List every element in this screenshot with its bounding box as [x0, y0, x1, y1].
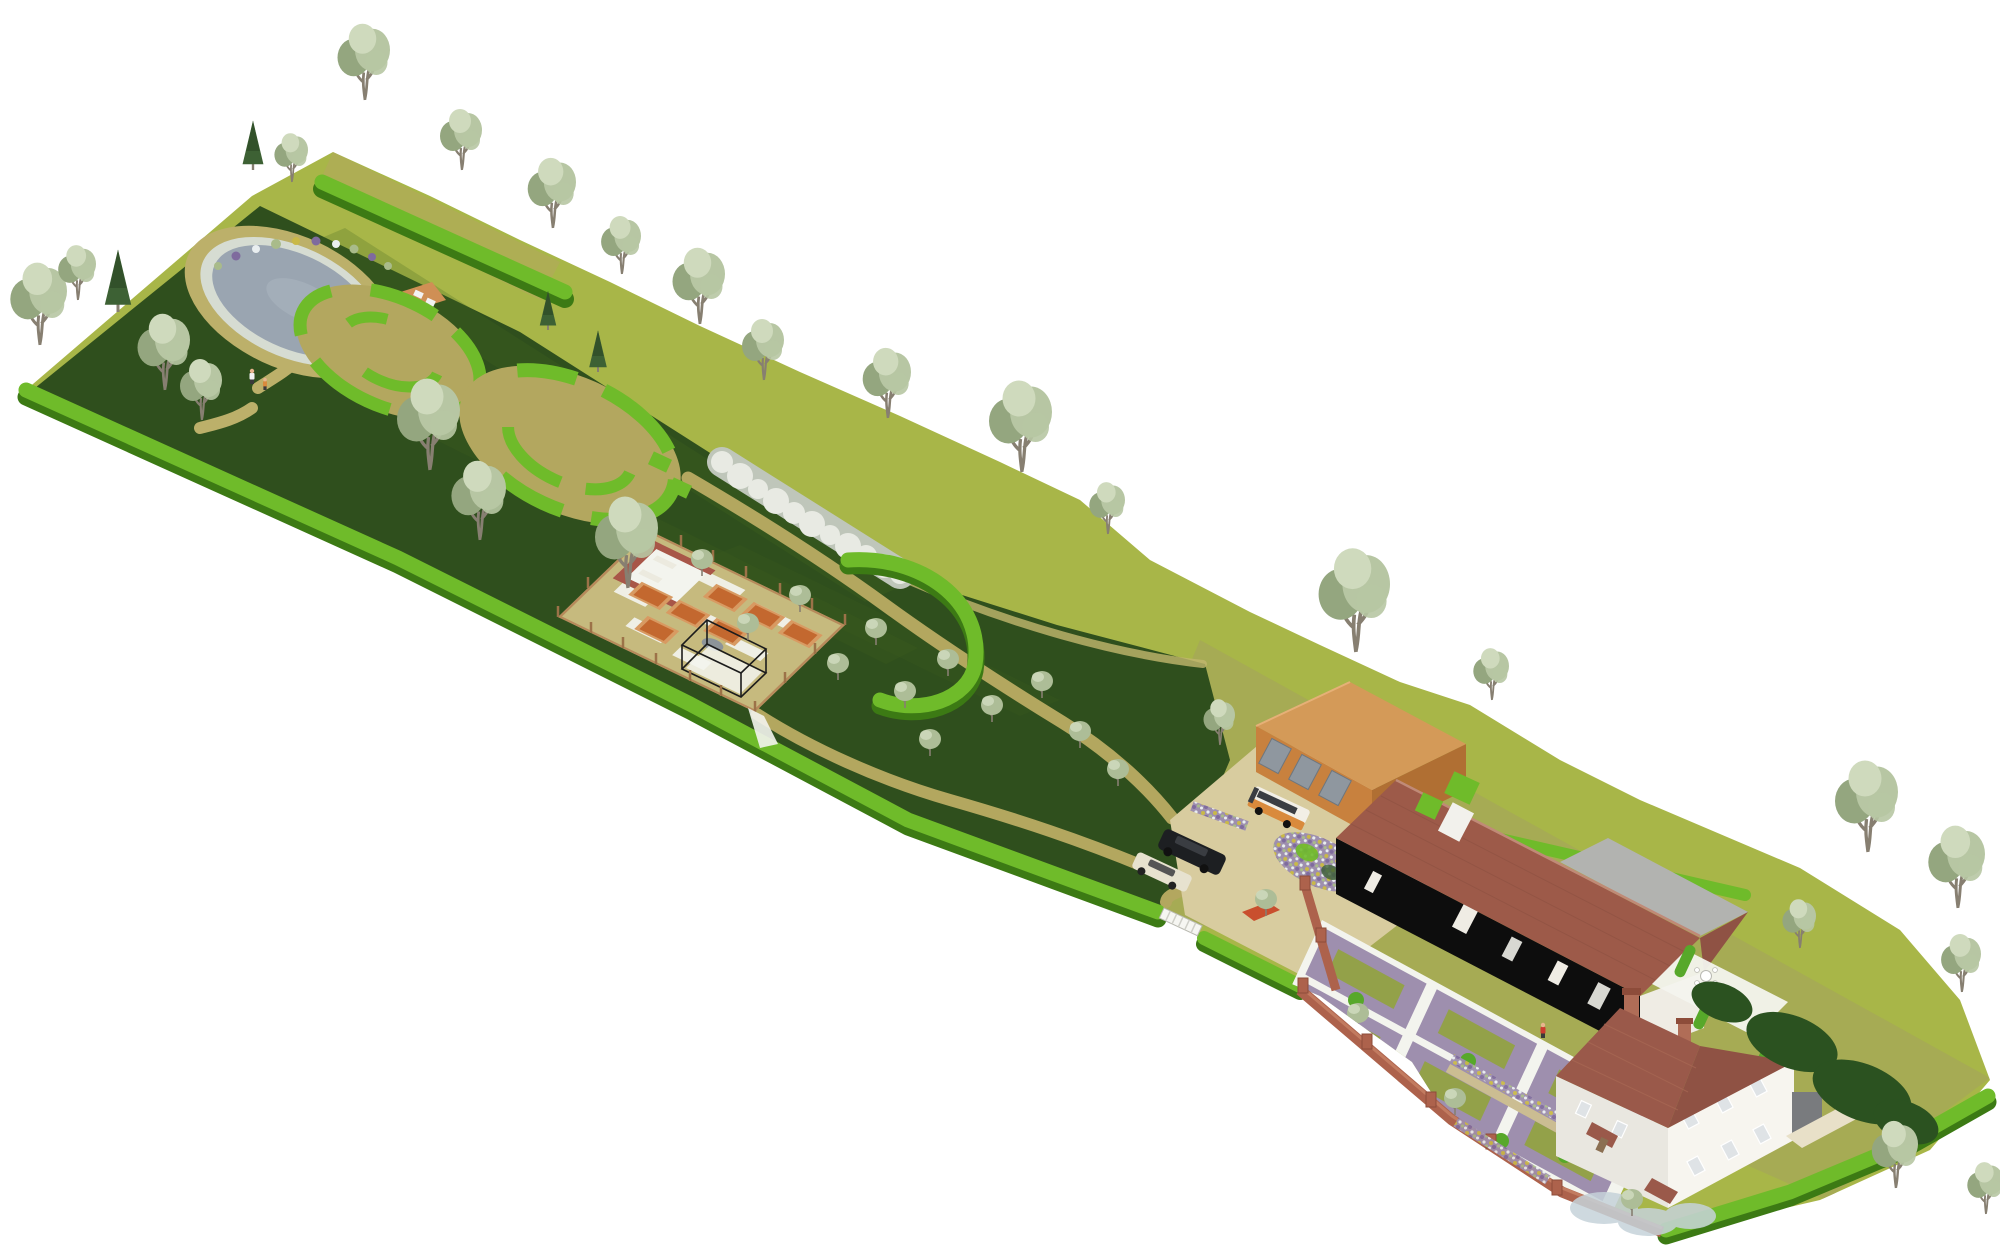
deciduous-tree	[601, 216, 641, 274]
deciduous-tree	[673, 248, 726, 324]
masterplan-canvas: Isometric garden masterplan 3D render	[0, 0, 2000, 1255]
deciduous-tree	[338, 24, 391, 100]
deciduous-tree	[1941, 934, 1981, 992]
deciduous-tree	[1473, 648, 1509, 700]
deciduous-tree	[1835, 761, 1898, 853]
deciduous-tree	[440, 109, 482, 170]
deciduous-tree	[10, 263, 67, 345]
person-gardener	[1541, 1023, 1546, 1038]
deciduous-tree	[528, 158, 576, 228]
deciduous-tree	[1928, 826, 1985, 908]
conifer-tree	[243, 121, 264, 170]
deciduous-tree	[989, 381, 1052, 473]
garden-masterplan-render: Isometric garden masterplan 3D render	[0, 0, 2000, 1255]
conifer-tree	[105, 250, 131, 312]
person-adult	[250, 369, 255, 384]
deciduous-tree	[1319, 548, 1390, 652]
deciduous-tree	[1967, 1162, 2000, 1214]
patio-table	[1701, 971, 1712, 982]
person-child	[263, 378, 267, 390]
